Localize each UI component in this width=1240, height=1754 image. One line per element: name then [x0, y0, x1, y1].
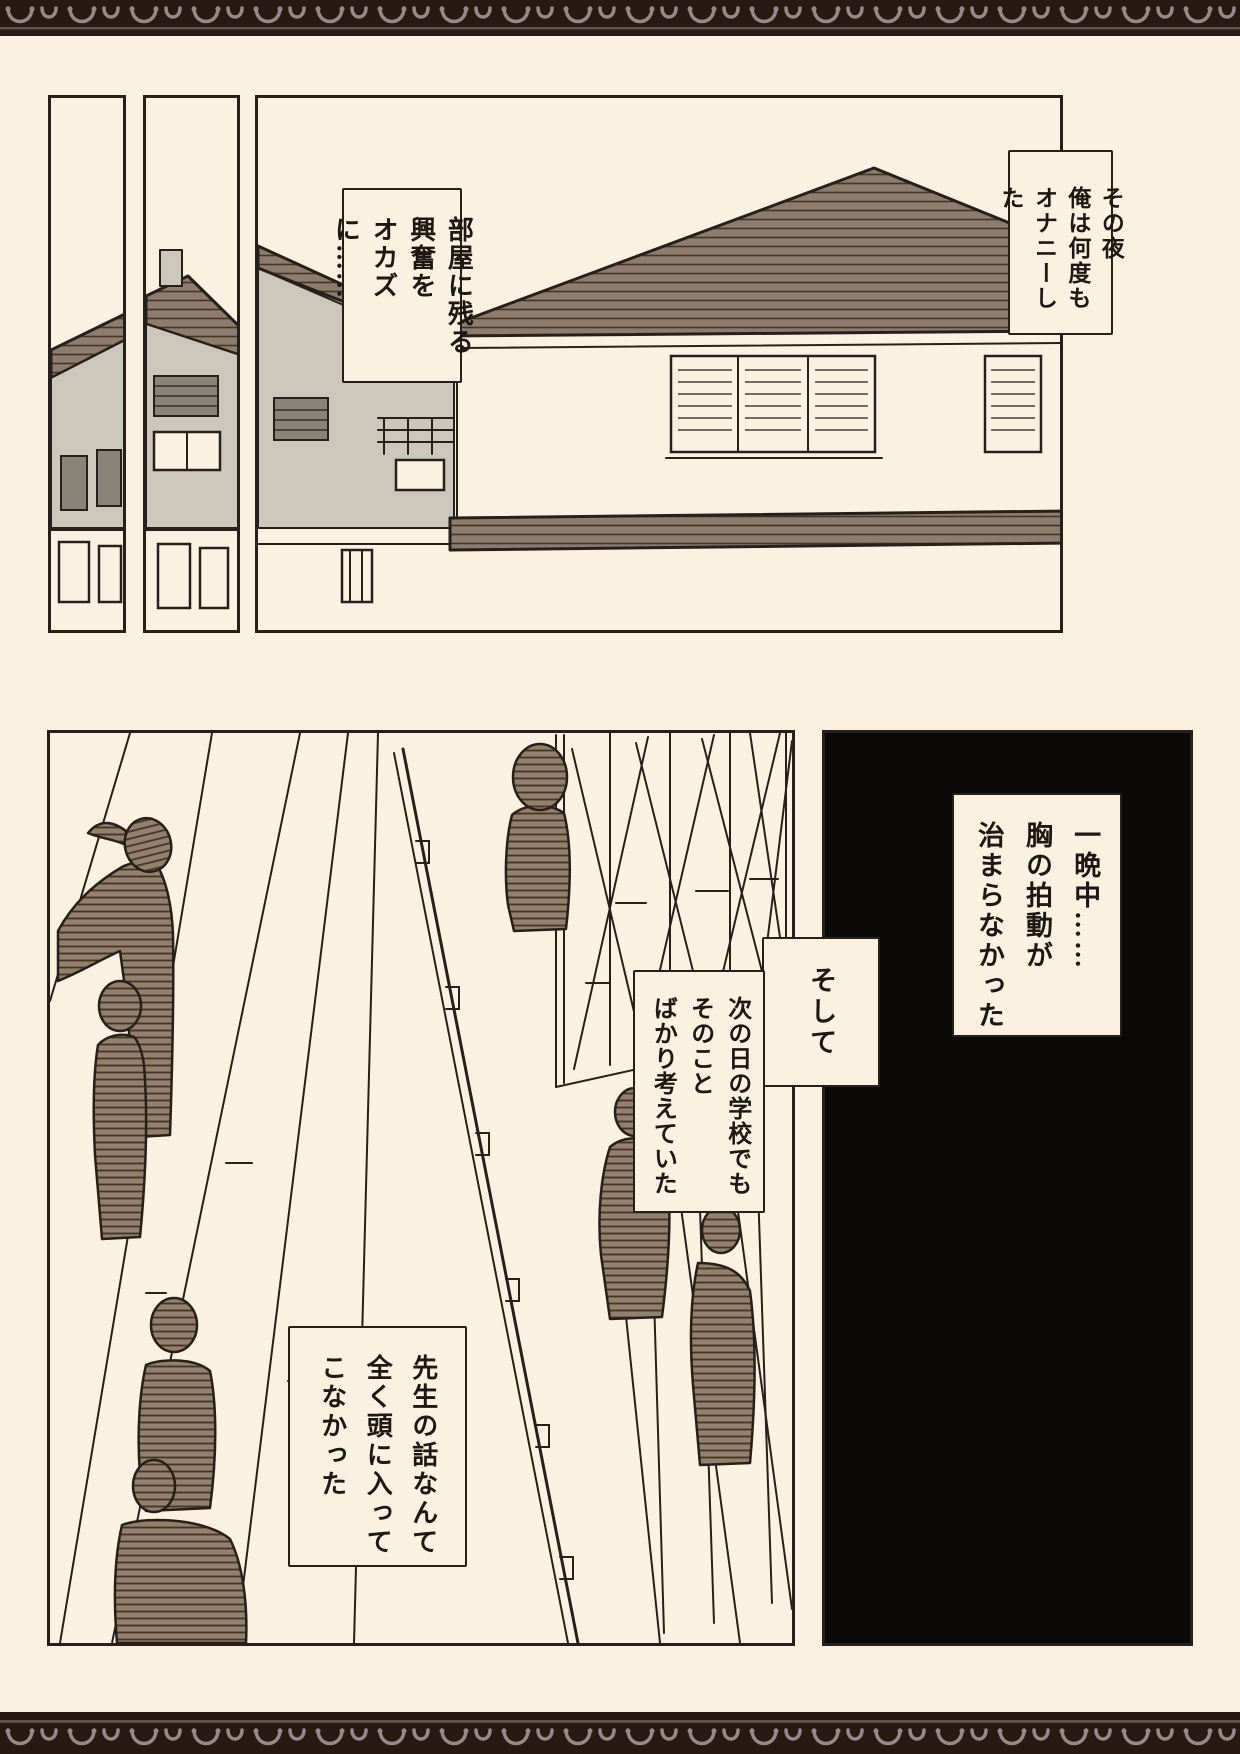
narration-text-night: その夜 俺は何度も オナニーした: [994, 152, 1127, 333]
narration-box-room: 部屋に残る 興奮を オカズに……: [342, 188, 462, 383]
narration-text-room: 部屋に残る 興奮を オカズに……: [327, 190, 478, 381]
manga-page: 部屋に残る 興奮を オカズに…… その夜 俺は何度も オナニーした: [0, 0, 1240, 1754]
narration-text-transition: そして: [805, 966, 837, 1059]
narration-box-night: その夜 俺は何度も オナニーした: [1008, 150, 1113, 335]
narration-box-nextday: 次の日の学校でも そのこと ばかり考えていた: [633, 970, 765, 1213]
ornament-border-bottom: [0, 1712, 1240, 1754]
panel-house-sliver-mid: [143, 95, 240, 633]
narration-box-teacher: 先生の話なんて 全く頭に入って こなかった: [288, 1326, 467, 1567]
narration-text-allnight: 一晩中…… 胸の拍動が 治まらなかった: [965, 795, 1109, 1031]
house-fragment-illustration: [51, 98, 126, 633]
narration-box-transition: そして: [762, 937, 880, 1087]
narration-box-allnight: 一晩中…… 胸の拍動が 治まらなかった: [952, 793, 1122, 1037]
ornament-border-top: [0, 0, 1240, 36]
narration-text-nextday: 次の日の学校でも そのこと ばかり考えていた: [643, 972, 755, 1196]
panel-house-sliver-left: [48, 95, 126, 633]
neighbor-house-illustration: [146, 98, 240, 633]
narration-text-teacher: 先生の話なんて 全く頭に入って こなかった: [309, 1328, 446, 1557]
